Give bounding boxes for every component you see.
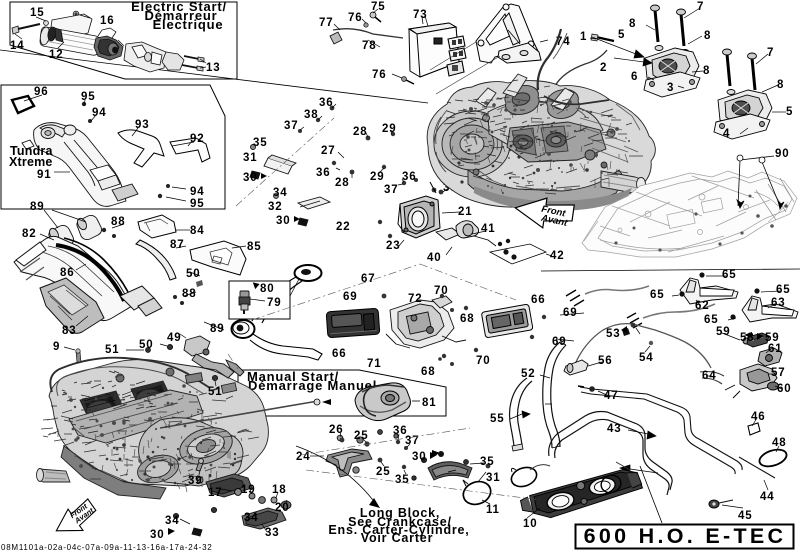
- svg-text:25: 25: [354, 430, 368, 442]
- svg-text:53: 53: [606, 328, 620, 340]
- svg-text:54: 54: [639, 352, 653, 364]
- svg-text:13: 13: [206, 62, 220, 74]
- svg-text:60: 60: [777, 383, 791, 395]
- svg-text:7: 7: [697, 1, 704, 13]
- svg-text:56: 56: [598, 355, 612, 367]
- svg-text:34: 34: [165, 515, 179, 527]
- svg-text:57: 57: [771, 367, 785, 379]
- svg-text:65: 65: [650, 289, 664, 301]
- svg-text:10: 10: [523, 518, 537, 530]
- svg-text:21: 21: [458, 206, 472, 218]
- svg-text:25: 25: [376, 466, 390, 478]
- svg-text:51: 51: [105, 344, 119, 356]
- svg-text:96: 96: [34, 86, 48, 98]
- svg-text:95: 95: [81, 91, 95, 103]
- svg-text:17: 17: [208, 487, 222, 499]
- svg-text:52: 52: [521, 368, 535, 380]
- svg-text:1: 1: [580, 31, 587, 43]
- svg-text:91: 91: [37, 169, 51, 181]
- svg-text:43: 43: [607, 423, 621, 435]
- svg-text:5: 5: [618, 29, 625, 41]
- svg-text:47: 47: [604, 390, 618, 402]
- svg-text:Electrique: Electrique: [153, 17, 224, 32]
- svg-text:61: 61: [768, 343, 782, 355]
- svg-text:83: 83: [62, 325, 76, 337]
- svg-text:30: 30: [276, 215, 290, 227]
- svg-text:8: 8: [704, 30, 711, 42]
- svg-text:50: 50: [139, 339, 153, 351]
- svg-text:69: 69: [343, 291, 357, 303]
- svg-text:82: 82: [22, 228, 36, 240]
- svg-text:84: 84: [190, 225, 204, 237]
- svg-text:6: 6: [631, 71, 638, 83]
- svg-text:95: 95: [190, 198, 204, 210]
- svg-text:27: 27: [321, 145, 335, 157]
- svg-text:42: 42: [550, 250, 564, 262]
- svg-text:35: 35: [480, 456, 494, 468]
- svg-text:8: 8: [777, 79, 784, 91]
- svg-text:45: 45: [738, 510, 752, 522]
- svg-text:31: 31: [486, 472, 500, 484]
- svg-text:19: 19: [241, 484, 255, 496]
- svg-text:76: 76: [372, 69, 386, 81]
- svg-text:72: 72: [408, 293, 422, 305]
- svg-text:12: 12: [49, 49, 63, 61]
- svg-text:63: 63: [771, 297, 785, 309]
- svg-text:34: 34: [273, 187, 287, 199]
- svg-text:40: 40: [427, 252, 441, 264]
- svg-text:36: 36: [319, 97, 333, 109]
- svg-text:29: 29: [370, 171, 384, 183]
- svg-text:66: 66: [531, 294, 545, 306]
- svg-text:30: 30: [243, 172, 257, 184]
- svg-text:28: 28: [335, 177, 349, 189]
- svg-text:50: 50: [186, 268, 200, 280]
- svg-text:36: 36: [402, 171, 416, 183]
- svg-text:85: 85: [247, 241, 261, 253]
- svg-text:66: 66: [332, 348, 346, 360]
- svg-text:38: 38: [304, 109, 318, 121]
- svg-text:73: 73: [413, 9, 427, 21]
- svg-text:37: 37: [384, 184, 398, 196]
- svg-text:11: 11: [486, 504, 500, 516]
- svg-text:51: 51: [208, 386, 222, 398]
- svg-text:33: 33: [265, 527, 279, 539]
- svg-text:600 H.O. E-TEC: 600 H.O. E-TEC: [584, 524, 787, 548]
- svg-text:23: 23: [386, 240, 400, 252]
- svg-text:30: 30: [412, 451, 426, 463]
- svg-text:75: 75: [371, 1, 385, 13]
- svg-text:29: 29: [382, 123, 396, 135]
- svg-text:78: 78: [362, 40, 376, 52]
- svg-text:3: 3: [667, 82, 674, 94]
- svg-text:81: 81: [422, 397, 436, 409]
- svg-text:15: 15: [30, 7, 44, 19]
- svg-text:58: 58: [740, 332, 754, 344]
- svg-text:08M1101a-02a-04c-07a-09a-11-13: 08M1101a-02a-04c-07a-09a-11-13-16a-17a-2…: [1, 543, 213, 551]
- svg-text:55: 55: [490, 413, 504, 425]
- svg-text:24: 24: [296, 451, 310, 463]
- svg-text:88: 88: [111, 216, 125, 228]
- svg-text:77: 77: [319, 17, 333, 29]
- svg-text:94: 94: [190, 186, 204, 198]
- svg-text:5: 5: [786, 106, 793, 118]
- svg-text:70: 70: [434, 285, 448, 297]
- svg-text:31: 31: [243, 152, 257, 164]
- svg-text:32: 32: [268, 201, 282, 213]
- svg-text:64: 64: [702, 370, 716, 382]
- svg-text:8: 8: [703, 65, 710, 77]
- svg-text:30: 30: [150, 529, 164, 541]
- svg-text:Démarrage Manuel: Démarrage Manuel: [248, 378, 377, 393]
- svg-text:88: 88: [182, 288, 196, 300]
- svg-text:65: 65: [704, 314, 718, 326]
- svg-text:22: 22: [336, 221, 350, 233]
- svg-text:39: 39: [188, 475, 202, 487]
- svg-text:35: 35: [253, 137, 267, 149]
- svg-text:94: 94: [92, 107, 106, 119]
- svg-text:65: 65: [776, 284, 790, 296]
- svg-text:65: 65: [722, 269, 736, 281]
- svg-text:34: 34: [244, 512, 258, 524]
- svg-text:37: 37: [284, 120, 298, 132]
- svg-text:92: 92: [190, 133, 204, 145]
- svg-text:68: 68: [421, 366, 435, 378]
- svg-text:37: 37: [405, 435, 419, 447]
- svg-text:14: 14: [10, 40, 24, 52]
- svg-text:18: 18: [272, 484, 286, 496]
- svg-text:28: 28: [353, 126, 367, 138]
- svg-text:71: 71: [367, 358, 381, 370]
- svg-text:70: 70: [476, 355, 490, 367]
- svg-text:93: 93: [135, 119, 149, 131]
- svg-text:Xtreme: Xtreme: [9, 155, 53, 169]
- svg-text:68: 68: [460, 313, 474, 325]
- svg-text:36: 36: [316, 167, 330, 179]
- svg-text:46: 46: [751, 411, 765, 423]
- svg-text:76: 76: [348, 12, 362, 24]
- svg-text:41: 41: [481, 223, 495, 235]
- svg-text:90: 90: [775, 148, 789, 160]
- svg-text:16: 16: [100, 15, 114, 27]
- svg-text:2: 2: [600, 62, 607, 74]
- svg-text:48: 48: [772, 437, 786, 449]
- svg-text:59: 59: [716, 326, 730, 338]
- svg-text:86: 86: [60, 267, 74, 279]
- svg-text:8: 8: [629, 18, 636, 30]
- svg-text:79: 79: [267, 297, 281, 309]
- svg-text:35: 35: [395, 474, 409, 486]
- svg-text:69: 69: [563, 307, 577, 319]
- svg-text:89: 89: [30, 201, 44, 213]
- svg-text:20: 20: [275, 502, 289, 514]
- svg-text:4: 4: [723, 128, 730, 140]
- svg-text:44: 44: [760, 491, 774, 503]
- svg-text:Voir Carter: Voir Carter: [361, 531, 433, 545]
- svg-text:26: 26: [329, 424, 343, 436]
- svg-text:49: 49: [167, 332, 181, 344]
- svg-text:80: 80: [260, 283, 274, 295]
- svg-text:89: 89: [210, 323, 224, 335]
- svg-text:87: 87: [170, 239, 184, 251]
- svg-text:9: 9: [53, 341, 60, 353]
- svg-text:62: 62: [695, 300, 709, 312]
- svg-text:7: 7: [767, 47, 774, 59]
